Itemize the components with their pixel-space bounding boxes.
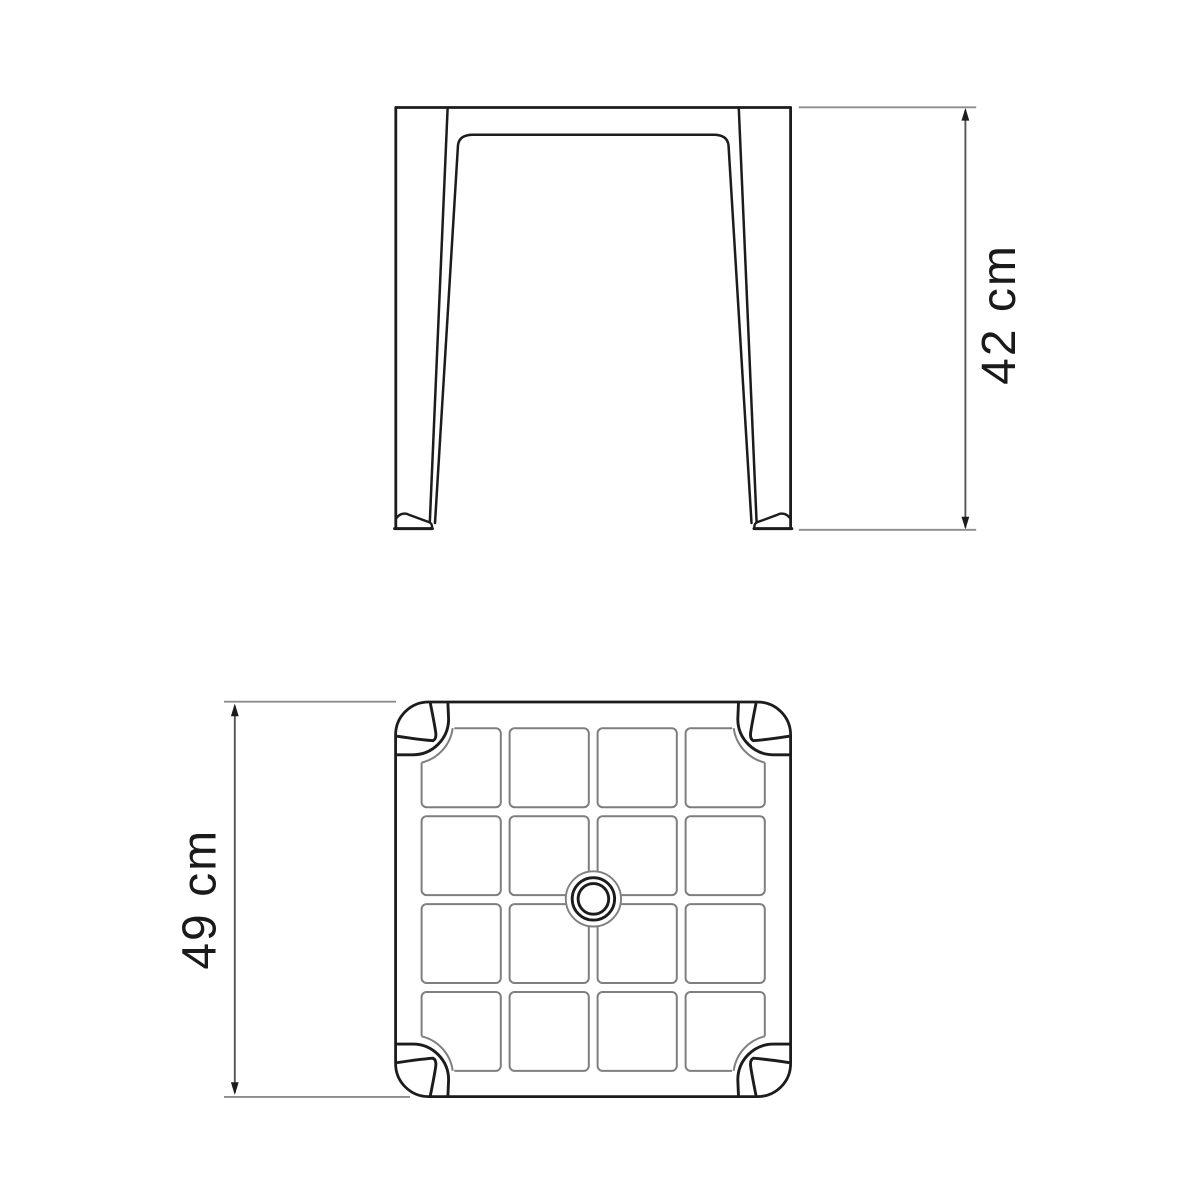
svg-text:42 cm: 42 cm [973, 244, 1026, 385]
svg-text:49 cm: 49 cm [174, 829, 227, 970]
